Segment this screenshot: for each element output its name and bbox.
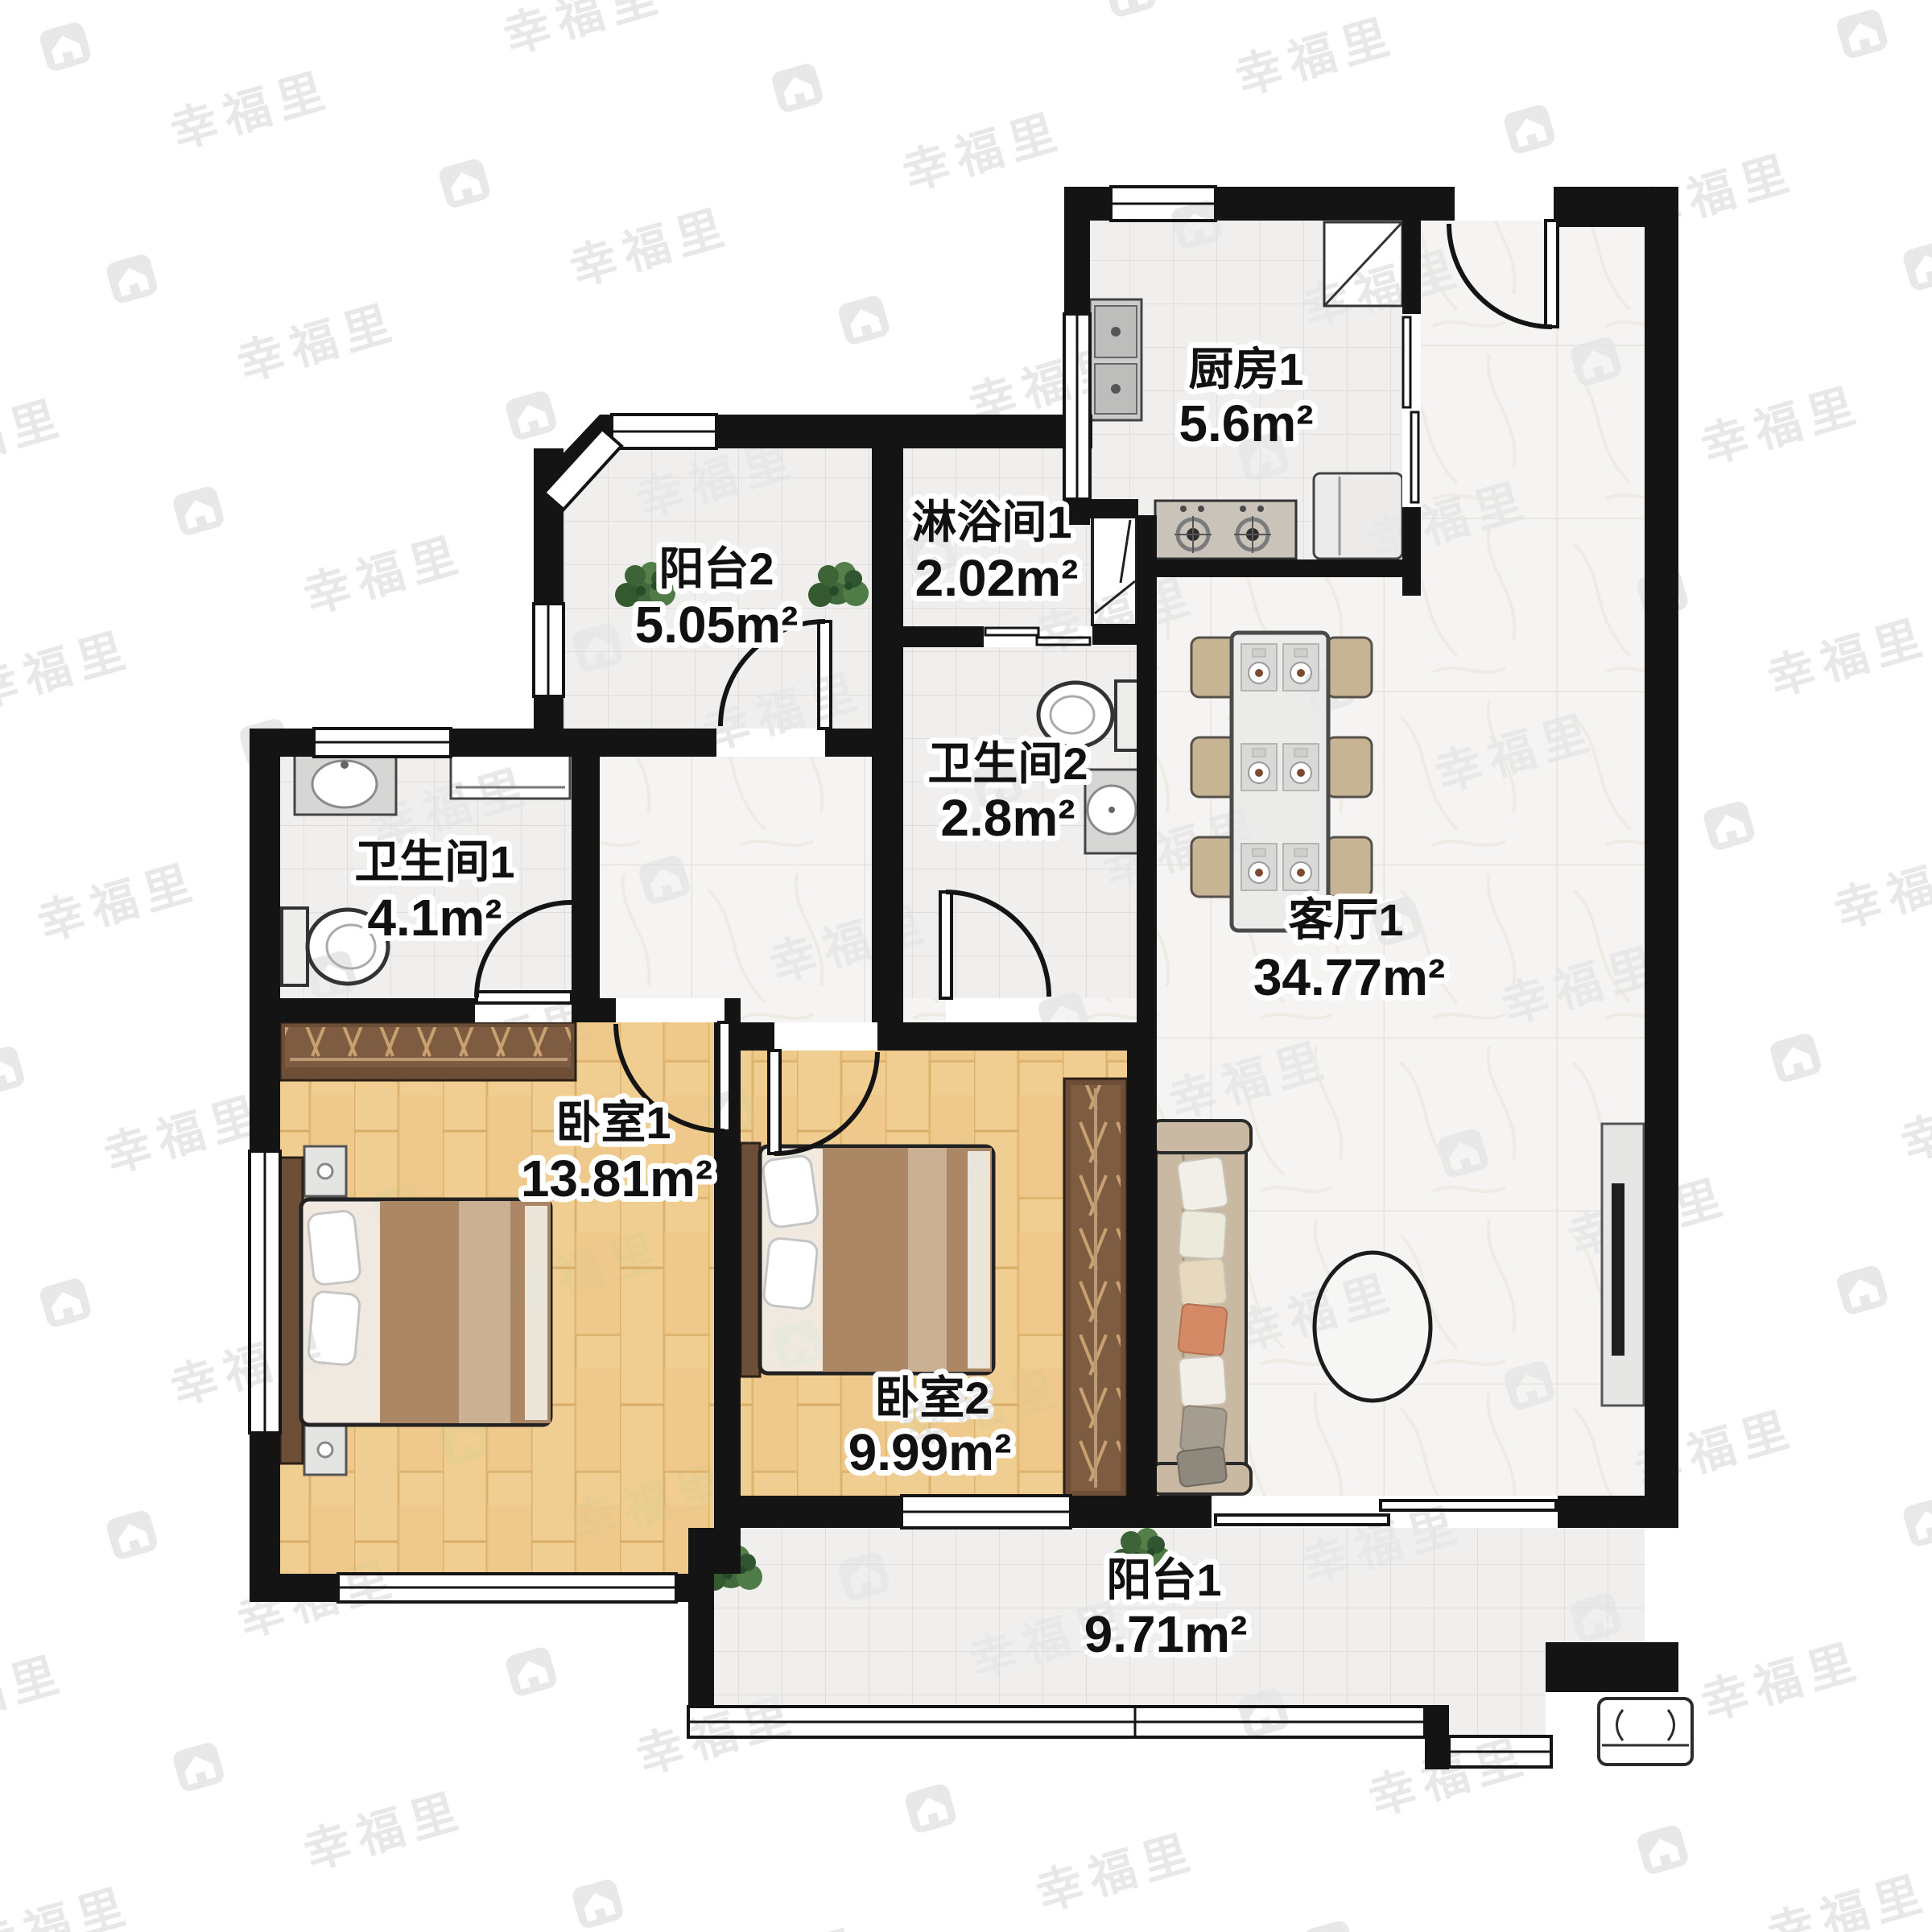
watermark-overlay bbox=[0, 0, 1932, 1932]
floorplan-svg: 幸福里 bbox=[0, 0, 1932, 1932]
floorplan-canvas: 幸福里 bbox=[0, 0, 1932, 1932]
